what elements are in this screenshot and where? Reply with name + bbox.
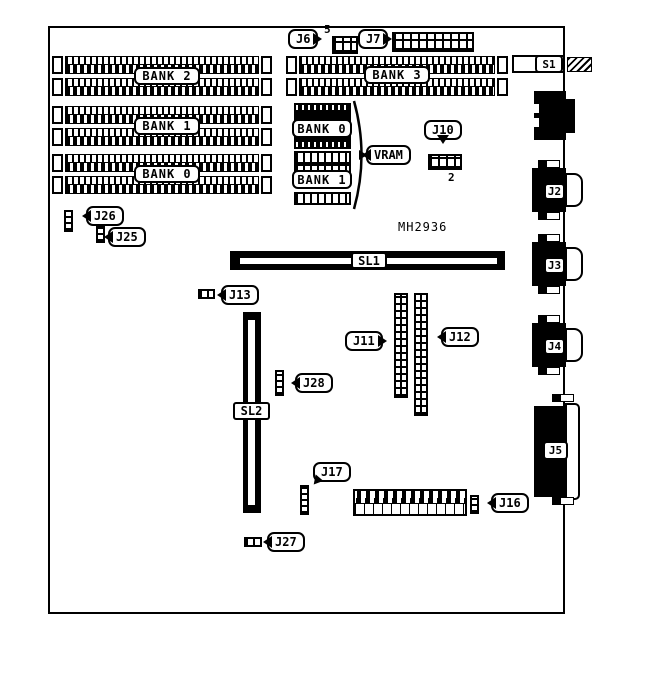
pin-pattern <box>300 87 494 95</box>
vram-bank1-text: BANK 1 <box>297 173 346 187</box>
callout-j13: J13 <box>221 285 259 305</box>
socket-endcap <box>52 176 63 194</box>
socket-endcap <box>52 78 63 96</box>
vram-bank1-label: BANK 1 <box>292 170 352 189</box>
socket-endcap <box>261 128 272 146</box>
j3-label-text: J3 <box>548 259 561 272</box>
j3-label: J3 <box>544 257 565 274</box>
vram-socket-strip <box>294 192 351 205</box>
callout-pointer-icon <box>257 536 272 548</box>
s1-label: S1 <box>535 55 563 73</box>
port-screw-tab <box>538 160 560 168</box>
vram-label: VRAM <box>374 148 403 162</box>
bank0-label: BANK 0 <box>134 165 200 183</box>
callout-pointer-icon <box>98 231 113 243</box>
socket-endcap <box>261 176 272 194</box>
j26-label: J26 <box>94 209 116 223</box>
chip-pin-pattern <box>296 142 349 147</box>
vram-socket-strip <box>294 151 351 164</box>
keyboard-connector-stub <box>566 99 575 133</box>
callout-pointer-icon <box>378 335 393 347</box>
sl2-label: SL2 <box>233 402 270 420</box>
port-screw-tab <box>538 234 560 242</box>
j4-port-shell <box>565 328 583 362</box>
callout-pointer-icon <box>211 289 226 301</box>
callout-pointer-icon <box>437 135 449 150</box>
j11-connector <box>394 293 408 398</box>
s1-actuator <box>567 57 592 72</box>
socket-endcap <box>261 78 272 96</box>
j11-label: J11 <box>353 334 375 348</box>
j4-label: J4 <box>544 338 565 355</box>
bank2-label: BANK 2 <box>134 67 200 85</box>
bank0-label-text: BANK 0 <box>142 167 191 181</box>
sl2-label-text: SL2 <box>241 404 263 418</box>
sl1-label-text: SL1 <box>358 254 380 268</box>
callout-j28: J28 <box>295 373 333 393</box>
vram-bank0-label: BANK 0 <box>292 119 352 138</box>
j6-connector <box>332 36 358 54</box>
pin-pattern <box>300 57 494 65</box>
sl1-label: SL1 <box>351 252 387 269</box>
pin-pattern <box>355 491 465 498</box>
power-connector <box>353 489 467 516</box>
socket-endcap <box>52 128 63 146</box>
callout-pointer-icon <box>481 497 496 509</box>
j3-port-shell <box>565 247 583 281</box>
callout-j10: J10 <box>424 120 462 140</box>
connector-notch <box>534 118 539 127</box>
pin-pattern <box>66 57 258 65</box>
pin-pattern <box>66 155 258 163</box>
callout-pointer-icon <box>285 377 300 389</box>
socket-endcap <box>261 106 272 124</box>
callout-pointer-icon <box>356 149 371 161</box>
j25-label: J25 <box>116 230 138 244</box>
j12-connector <box>414 293 428 416</box>
j28-label: J28 <box>303 376 325 390</box>
bank2-label-text: BANK 2 <box>142 69 191 83</box>
bank1-label-text: BANK 1 <box>142 119 191 133</box>
callout-j6: J6 <box>288 29 318 49</box>
j10-connector <box>428 154 462 170</box>
callout-j26: J26 <box>86 206 124 226</box>
j16-connector <box>470 495 479 514</box>
j13-label: J13 <box>229 288 251 302</box>
callout-vram: VRAM <box>366 145 411 165</box>
j5-label: J5 <box>543 441 568 460</box>
j27-label: J27 <box>275 535 297 549</box>
pin-pattern <box>355 503 465 514</box>
port-screw-tab <box>552 394 574 402</box>
callout-j7: J7 <box>358 29 388 49</box>
j2-label: J2 <box>544 183 565 200</box>
socket-endcap <box>52 106 63 124</box>
callout-j27: J27 <box>267 532 305 552</box>
callout-pointer-icon <box>431 331 446 343</box>
board-id-text: MH2936 <box>398 220 447 234</box>
bank3-label: BANK 3 <box>364 66 430 84</box>
j2-port-shell <box>565 173 583 207</box>
j26-connector <box>64 210 73 232</box>
j6-label: J6 <box>296 32 310 46</box>
j5-label-text: J5 <box>549 444 562 457</box>
socket-endcap <box>52 154 63 172</box>
callout-j17: J17 <box>313 462 351 482</box>
j12-label: J12 <box>449 330 471 344</box>
pin-pattern <box>66 137 258 145</box>
j28-connector <box>275 370 284 396</box>
port-screw-tab <box>538 315 560 323</box>
s1-label-text: S1 <box>542 58 555 71</box>
vram-bank0-text: BANK 0 <box>297 122 346 136</box>
socket-endcap <box>261 56 272 74</box>
socket-endcap <box>261 154 272 172</box>
callout-pointer-icon <box>313 33 328 45</box>
socket-endcap <box>52 56 63 74</box>
connector-notch <box>534 104 539 113</box>
chip-pin-pattern <box>296 105 349 110</box>
callout-j12: J12 <box>441 327 479 347</box>
port-screw-tab <box>538 212 560 220</box>
socket-endcap <box>286 78 297 96</box>
bank3-label-text: BANK 3 <box>372 68 421 82</box>
pin-pattern <box>66 185 258 193</box>
socket-endcap <box>497 56 508 74</box>
pin-pattern <box>66 107 258 115</box>
j4-label-text: J4 <box>548 340 561 353</box>
callout-j16: J16 <box>491 493 529 513</box>
j17-label: J17 <box>321 465 343 479</box>
socket-endcap <box>497 78 508 96</box>
bank1-label: BANK 1 <box>134 117 200 135</box>
system-board-diagram: BANK 2 BANK 1 BANK 0 BANK 3 J6 5 <box>0 0 651 680</box>
socket-endcap <box>286 56 297 74</box>
port-screw-tab <box>538 367 560 375</box>
j7-label: J7 <box>366 32 380 46</box>
callout-pointer-icon <box>76 210 91 222</box>
j7-connector <box>392 32 474 52</box>
port-screw-tab <box>538 286 560 294</box>
pin-pattern <box>66 87 258 95</box>
port-screw-tab <box>552 497 574 505</box>
j10-pin-number: 2 <box>448 171 455 184</box>
keyboard-connector <box>534 91 566 140</box>
callout-pointer-icon <box>383 33 398 45</box>
j16-label: J16 <box>499 496 521 510</box>
j17-connector <box>300 485 309 515</box>
callout-j25: J25 <box>108 227 146 247</box>
callout-j11: J11 <box>345 331 383 351</box>
j2-label-text: J2 <box>548 185 561 198</box>
